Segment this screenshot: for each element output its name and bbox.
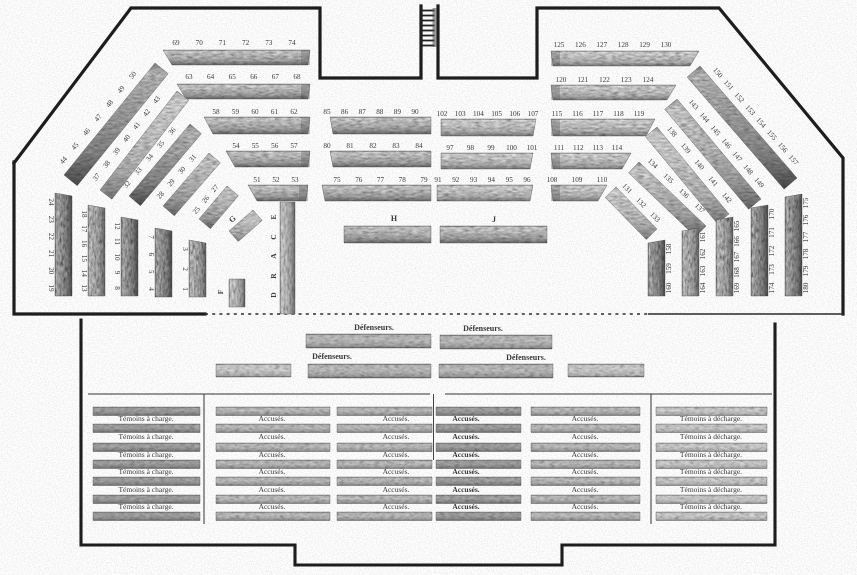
svg-text:98: 98 xyxy=(467,144,475,152)
svg-text:11: 11 xyxy=(113,238,121,245)
svg-text:75: 75 xyxy=(333,176,341,184)
svg-text:6: 6 xyxy=(147,253,155,257)
svg-text:21: 21 xyxy=(47,250,55,258)
svg-text:116: 116 xyxy=(572,110,583,118)
svg-text:115: 115 xyxy=(552,110,563,118)
svg-text:106: 106 xyxy=(509,110,520,118)
svg-text:65: 65 xyxy=(229,73,237,81)
svg-text:165: 165 xyxy=(733,220,741,231)
svg-text:Accusés.: Accusés. xyxy=(572,432,599,441)
svg-text:71: 71 xyxy=(219,39,227,47)
svg-text:112: 112 xyxy=(573,144,584,152)
svg-text:166: 166 xyxy=(733,236,741,247)
svg-text:100: 100 xyxy=(506,144,517,152)
svg-text:72: 72 xyxy=(242,39,250,47)
svg-text:129: 129 xyxy=(639,41,650,49)
svg-text:161: 161 xyxy=(699,231,707,242)
svg-text:55: 55 xyxy=(252,142,260,150)
svg-text:3: 3 xyxy=(181,247,189,251)
svg-text:Accusés.: Accusés. xyxy=(452,467,479,476)
svg-text:99: 99 xyxy=(487,144,495,152)
svg-text:13: 13 xyxy=(80,284,88,292)
svg-text:105: 105 xyxy=(491,110,502,118)
svg-text:82: 82 xyxy=(369,142,377,150)
svg-text:Témoins à décharge.: Témoins à décharge. xyxy=(680,502,742,511)
svg-text:20: 20 xyxy=(47,267,55,275)
svg-text:118: 118 xyxy=(613,110,624,118)
svg-text:67: 67 xyxy=(272,73,280,81)
svg-text:14: 14 xyxy=(80,270,88,278)
svg-text:95: 95 xyxy=(506,176,514,184)
svg-text:Accusés.: Accusés. xyxy=(383,467,410,476)
svg-text:22: 22 xyxy=(47,233,55,241)
svg-text:176: 176 xyxy=(802,214,810,225)
svg-text:Témoins à décharge.: Témoins à décharge. xyxy=(680,450,742,459)
svg-text:180: 180 xyxy=(802,282,810,293)
svg-text:A: A xyxy=(269,253,278,259)
svg-text:88: 88 xyxy=(376,108,384,116)
svg-text:178: 178 xyxy=(802,248,810,259)
svg-text:Accusés.: Accusés. xyxy=(259,450,286,459)
svg-text:164: 164 xyxy=(699,282,707,293)
svg-text:H: H xyxy=(391,214,398,223)
svg-text:63: 63 xyxy=(185,73,193,81)
svg-text:74: 74 xyxy=(288,39,296,47)
svg-text:91: 91 xyxy=(434,176,442,184)
svg-text:70: 70 xyxy=(196,39,204,47)
svg-text:1: 1 xyxy=(181,287,189,291)
svg-text:83: 83 xyxy=(392,142,400,150)
svg-text:10: 10 xyxy=(113,253,121,261)
svg-text:62: 62 xyxy=(290,108,298,116)
svg-text:110: 110 xyxy=(597,176,608,184)
svg-text:Défenseurs.: Défenseurs. xyxy=(463,324,503,333)
svg-text:Accusés.: Accusés. xyxy=(259,502,286,511)
svg-text:119: 119 xyxy=(634,110,645,118)
svg-text:111: 111 xyxy=(554,144,565,152)
svg-text:78: 78 xyxy=(399,176,407,184)
svg-text:Témoins à décharge.: Témoins à décharge. xyxy=(680,414,742,423)
svg-text:12: 12 xyxy=(113,222,121,230)
svg-text:J: J xyxy=(492,215,496,224)
svg-text:E: E xyxy=(269,214,278,219)
svg-text:Témoins à décharge.: Témoins à décharge. xyxy=(680,485,742,494)
svg-text:108: 108 xyxy=(547,176,558,184)
svg-text:Accusés.: Accusés. xyxy=(452,414,479,423)
svg-text:92: 92 xyxy=(452,176,460,184)
svg-text:172: 172 xyxy=(768,245,776,256)
svg-text:18: 18 xyxy=(80,210,88,218)
svg-text:77: 77 xyxy=(377,176,385,184)
svg-text:15: 15 xyxy=(80,255,88,263)
svg-text:Accusés.: Accusés. xyxy=(452,502,479,511)
svg-text:120: 120 xyxy=(556,76,567,84)
svg-text:8: 8 xyxy=(113,286,121,290)
svg-text:52: 52 xyxy=(272,176,280,184)
svg-text:175: 175 xyxy=(802,197,810,208)
svg-text:Accusés.: Accusés. xyxy=(452,485,479,494)
svg-text:85: 85 xyxy=(323,108,331,116)
svg-text:58: 58 xyxy=(212,108,220,116)
svg-text:90: 90 xyxy=(411,108,419,116)
svg-text:126: 126 xyxy=(575,41,586,49)
svg-text:104: 104 xyxy=(473,110,484,118)
svg-text:109: 109 xyxy=(572,176,583,184)
svg-text:68: 68 xyxy=(293,73,301,81)
svg-text:86: 86 xyxy=(341,108,349,116)
svg-text:60: 60 xyxy=(251,108,259,116)
svg-text:51: 51 xyxy=(253,176,261,184)
svg-text:159: 159 xyxy=(665,263,673,274)
svg-text:93: 93 xyxy=(470,176,478,184)
svg-text:Défenseurs.: Défenseurs. xyxy=(312,352,352,361)
svg-text:76: 76 xyxy=(355,176,363,184)
svg-text:107: 107 xyxy=(528,110,539,118)
svg-text:59: 59 xyxy=(232,108,240,116)
svg-text:170: 170 xyxy=(768,208,776,219)
svg-text:158: 158 xyxy=(665,243,673,254)
svg-text:Témoins à charge.: Témoins à charge. xyxy=(118,450,173,459)
svg-text:127: 127 xyxy=(596,41,607,49)
svg-text:79: 79 xyxy=(420,176,428,184)
svg-text:169: 169 xyxy=(733,282,741,293)
svg-text:84: 84 xyxy=(415,142,423,150)
svg-text:177: 177 xyxy=(802,231,810,242)
svg-text:F: F xyxy=(216,289,225,294)
svg-text:168: 168 xyxy=(733,267,741,278)
svg-text:89: 89 xyxy=(394,108,402,116)
svg-text:23: 23 xyxy=(47,216,55,224)
svg-text:61: 61 xyxy=(271,108,279,116)
svg-text:Accusés.: Accusés. xyxy=(572,502,599,511)
svg-text:R: R xyxy=(269,273,278,279)
svg-text:96: 96 xyxy=(523,176,531,184)
svg-text:117: 117 xyxy=(593,110,604,118)
svg-text:114: 114 xyxy=(612,144,623,152)
svg-text:173: 173 xyxy=(768,264,776,275)
svg-text:C: C xyxy=(269,234,278,239)
svg-text:Défenseurs.: Défenseurs. xyxy=(354,323,394,332)
svg-text:123: 123 xyxy=(621,76,632,84)
svg-text:130: 130 xyxy=(661,41,672,49)
svg-text:Accusés.: Accusés. xyxy=(572,485,599,494)
svg-text:Accusés.: Accusés. xyxy=(383,432,410,441)
svg-text:D: D xyxy=(269,292,278,298)
svg-text:171: 171 xyxy=(768,227,776,238)
svg-text:Témoins à charge.: Témoins à charge. xyxy=(118,432,173,441)
svg-text:128: 128 xyxy=(618,41,629,49)
svg-text:2: 2 xyxy=(181,267,189,271)
svg-text:Accusés.: Accusés. xyxy=(383,485,410,494)
svg-text:87: 87 xyxy=(359,108,367,116)
svg-text:Accusés.: Accusés. xyxy=(259,485,286,494)
svg-text:57: 57 xyxy=(290,142,298,150)
svg-text:80: 80 xyxy=(323,142,331,150)
svg-text:Accusés.: Accusés. xyxy=(383,450,410,459)
svg-text:69: 69 xyxy=(172,39,180,47)
svg-text:121: 121 xyxy=(577,76,588,84)
svg-text:81: 81 xyxy=(346,142,354,150)
svg-text:7: 7 xyxy=(147,235,155,239)
svg-text:Accusés.: Accusés. xyxy=(572,414,599,423)
svg-text:179: 179 xyxy=(802,265,810,276)
svg-text:125: 125 xyxy=(554,41,565,49)
svg-text:Défenseurs.: Défenseurs. xyxy=(506,353,546,362)
svg-text:Témoins à charge.: Témoins à charge. xyxy=(118,485,173,494)
svg-text:66: 66 xyxy=(250,73,258,81)
svg-text:162: 162 xyxy=(699,248,707,259)
svg-text:122: 122 xyxy=(599,76,610,84)
svg-text:101: 101 xyxy=(527,144,538,152)
svg-text:Accusés.: Accusés. xyxy=(452,450,479,459)
svg-text:174: 174 xyxy=(768,282,776,293)
svg-text:53: 53 xyxy=(291,176,299,184)
svg-text:19: 19 xyxy=(47,284,55,292)
svg-text:64: 64 xyxy=(207,73,215,81)
svg-text:Témoins à décharge.: Témoins à décharge. xyxy=(680,467,742,476)
svg-text:24: 24 xyxy=(47,198,55,206)
svg-text:102: 102 xyxy=(437,110,448,118)
svg-text:Accusés.: Accusés. xyxy=(572,450,599,459)
svg-text:Accusés.: Accusés. xyxy=(572,467,599,476)
svg-text:Témoins à charge.: Témoins à charge. xyxy=(118,502,173,511)
svg-text:17: 17 xyxy=(80,225,88,233)
svg-text:160: 160 xyxy=(665,282,673,293)
svg-text:Accusés.: Accusés. xyxy=(259,432,286,441)
svg-text:5: 5 xyxy=(147,270,155,274)
svg-text:94: 94 xyxy=(488,176,496,184)
svg-text:Accusés.: Accusés. xyxy=(452,432,479,441)
svg-text:163: 163 xyxy=(699,265,707,276)
svg-text:Accusés.: Accusés. xyxy=(383,414,410,423)
svg-text:Accusés.: Accusés. xyxy=(259,467,286,476)
svg-text:Accusés.: Accusés. xyxy=(383,502,410,511)
svg-text:103: 103 xyxy=(455,110,466,118)
svg-text:124: 124 xyxy=(643,76,654,84)
svg-text:113: 113 xyxy=(592,144,603,152)
svg-text:Témoins à charge.: Témoins à charge. xyxy=(118,414,173,423)
svg-text:9: 9 xyxy=(113,271,121,275)
svg-text:54: 54 xyxy=(232,142,240,150)
svg-text:Témoins à charge.: Témoins à charge. xyxy=(118,467,173,476)
svg-text:56: 56 xyxy=(271,142,279,150)
svg-text:167: 167 xyxy=(733,251,741,262)
svg-text:Témoins à décharge.: Témoins à décharge. xyxy=(680,432,742,441)
svg-text:4: 4 xyxy=(147,287,155,291)
svg-text:16: 16 xyxy=(80,240,88,248)
svg-text:Accusés.: Accusés. xyxy=(259,414,286,423)
svg-text:97: 97 xyxy=(446,144,454,152)
svg-text:73: 73 xyxy=(265,39,273,47)
